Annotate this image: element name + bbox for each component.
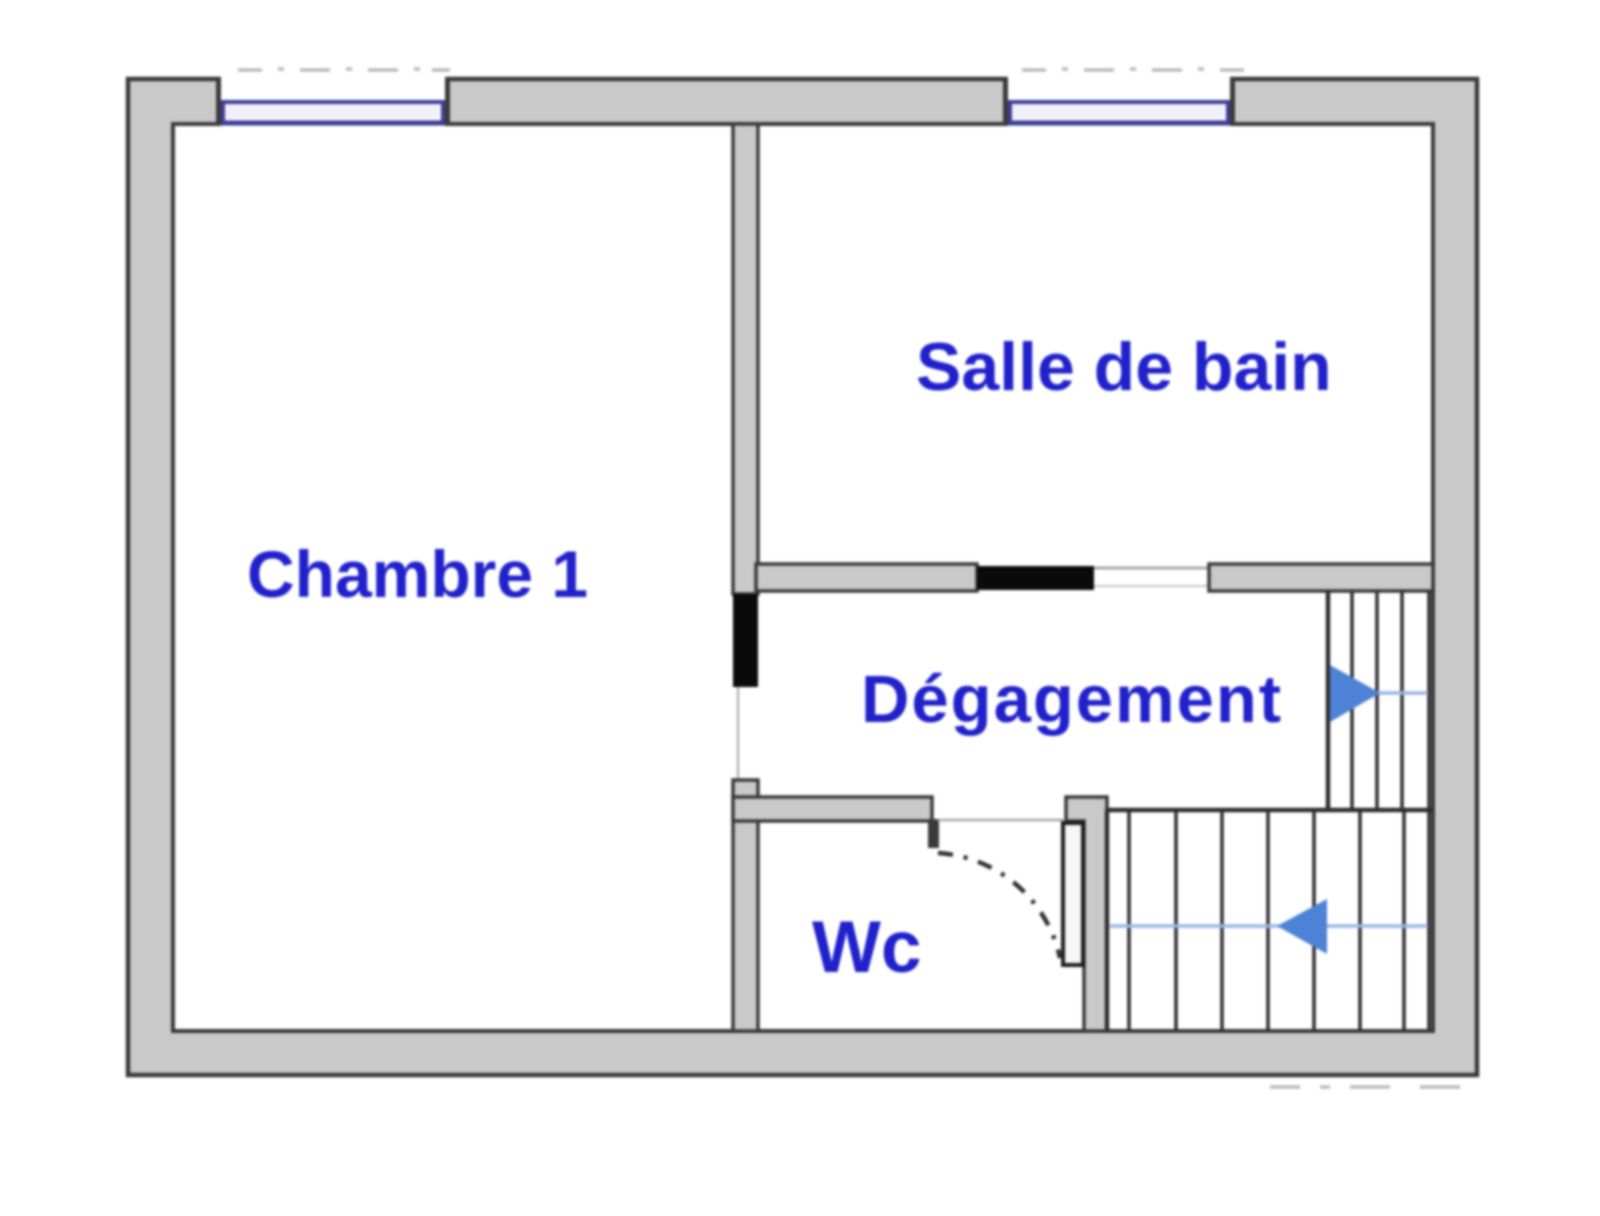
svg-text:Wc: Wc	[812, 907, 922, 988]
svg-text:Dégagement: Dégagement	[861, 662, 1283, 737]
svg-text:Salle de bain: Salle de bain	[916, 329, 1332, 405]
svg-text:Chambre 1: Chambre 1	[247, 537, 588, 611]
